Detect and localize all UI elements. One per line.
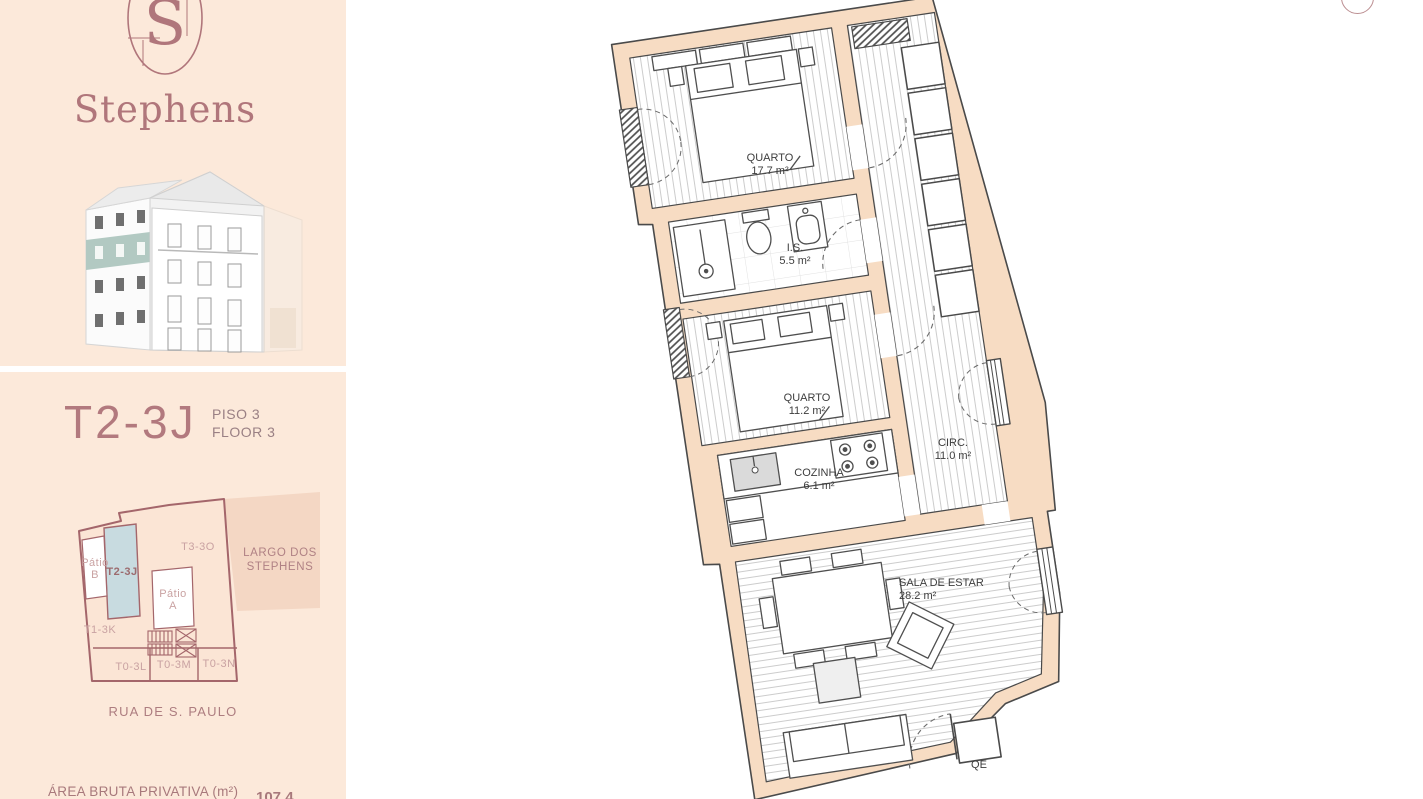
site-label-t3: T3-3O — [181, 541, 215, 553]
sidebar: S Stephens — [0, 0, 346, 799]
room-area-living: 28.2 m² — [899, 590, 937, 602]
room-label-kitchen: COZINHA — [794, 467, 844, 479]
patio-b-label-1: Pátio — [81, 557, 109, 569]
stephens-logo: S Stephens — [0, 0, 346, 150]
area-summary: ÁREA BRUTA PRIVATIVA (m²) 107.4 — [0, 784, 346, 799]
patio-a-label-2: A — [169, 600, 177, 612]
room-area-bathroom: 5.5 m² — [779, 255, 811, 267]
gross-area-label: ÁREA BRUTA PRIVATIVA (m²) — [48, 784, 238, 799]
site-label-t0m: T0-3M — [157, 659, 191, 671]
room-label-bathroom: I.S. — [787, 242, 804, 254]
brand-name: Stephens — [74, 88, 256, 131]
kitchen-sink-symbol — [730, 453, 780, 491]
room-area-bedroom1: 17.7 m² — [751, 165, 789, 177]
section-divider — [0, 366, 346, 372]
largo-label-2: STEPHENS — [247, 561, 314, 573]
cabinet-symbol — [726, 496, 766, 545]
street-label: RUA DE S. PAULO — [0, 704, 346, 719]
unit-floor-pt: PISO 3 — [212, 405, 275, 423]
brochure-page: S Stephens — [0, 0, 1423, 799]
logo-monogram: S — [144, 0, 186, 59]
qe-label: QE — [971, 759, 987, 771]
room-area-bedroom2: 11.2 m² — [789, 405, 826, 417]
unit-floor-en: FLOOR 3 — [212, 423, 275, 441]
room-label-bedroom2: QUARTO — [784, 392, 831, 404]
building-render — [0, 158, 346, 363]
site-label-t1: T1-3K — [84, 624, 117, 636]
patio-a-label-1: Pátio — [159, 588, 187, 600]
patio-b-label-2: B — [91, 569, 99, 581]
gross-area-value: 107.4 — [256, 789, 294, 799]
site-plan: LARGO DOS STEPHENS T2-3J Pátio B Pátio A — [0, 478, 346, 728]
living-pass-opening — [982, 501, 1011, 525]
room-label-bedroom1: QUARTO — [747, 152, 794, 164]
qe-box — [954, 717, 1001, 763]
north-indicator-icon — [1341, 0, 1374, 14]
site-label-t0l: T0-3L — [115, 661, 146, 673]
room-label-circulation: CIRC. — [938, 437, 968, 449]
room-area-circulation: 11.0 m² — [935, 450, 972, 462]
room-label-living: SALA DE ESTAR — [899, 577, 984, 589]
site-label-t0n: T0-3N — [202, 658, 235, 670]
unit-code: T2-3J — [64, 396, 334, 448]
unit-heading: T2-3J PISO 3 FLOOR 3 — [64, 396, 334, 456]
coffee-table-symbol — [813, 657, 860, 703]
unit-floor: PISO 3 FLOOR 3 — [212, 405, 275, 441]
site-unit-highlight-label: T2-3J — [106, 566, 137, 578]
floor-plan: QUARTO 17.7 m² I.S. 5.5 m² QUARTO 11.2 m… — [585, 0, 1145, 799]
largo-label-1: LARGO DOS — [243, 547, 317, 559]
room-area-kitchen: 6.1 m² — [803, 480, 835, 492]
